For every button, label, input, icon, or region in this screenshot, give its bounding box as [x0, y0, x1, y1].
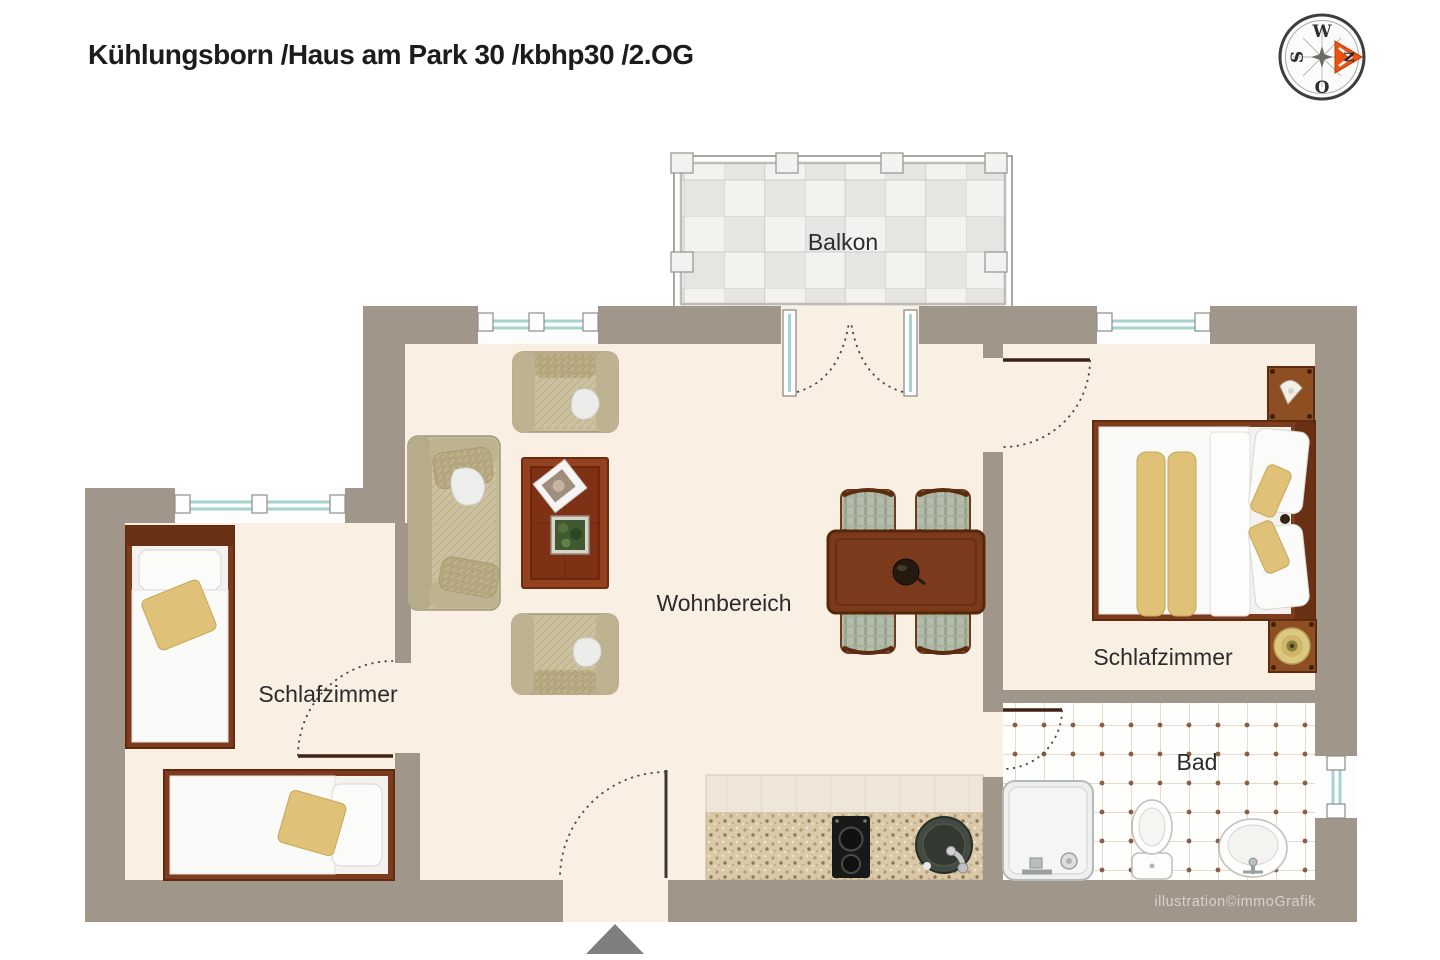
folded-blanket: [1137, 452, 1165, 616]
window-bedroom-right: [1097, 306, 1210, 344]
pillow: [139, 550, 221, 590]
bedroom-right-label: Schlafzimmer: [1093, 644, 1233, 670]
nightstand-top: [1268, 367, 1314, 421]
kitchenette: [706, 775, 983, 880]
compass-north-label: N: [1341, 51, 1356, 63]
sofa: [408, 436, 501, 610]
window-bathroom: [1315, 756, 1357, 818]
armchair-throw: [572, 389, 599, 419]
single-bed-1: [126, 526, 234, 748]
armchair-top: [513, 352, 618, 432]
table-bowl: [893, 559, 919, 585]
window-living: [478, 306, 598, 344]
illustration-credit: illustration©immoGrafik: [1154, 894, 1316, 910]
kitchen-sink: [916, 817, 972, 873]
compass: W S O N: [1280, 15, 1364, 99]
compass-west-label: W: [1311, 22, 1332, 42]
armchair-bottom: [512, 614, 618, 694]
dining-chair: [916, 490, 970, 536]
sofa-throw: [451, 468, 485, 505]
balcony: Balkon: [671, 153, 1012, 310]
shower: [1003, 781, 1093, 880]
entrance-arrow-icon: [586, 924, 644, 954]
floor-plan-page: Kühlungsborn /Haus am Park 30 /kbhp30 /2…: [0, 0, 1440, 960]
window-bedroom-left: [175, 488, 345, 523]
plant: [551, 516, 589, 554]
single-bed-2: [164, 770, 394, 880]
bathroom-label: Bad: [1177, 749, 1218, 775]
folded-blanket: [1168, 452, 1196, 616]
toilet: [1132, 800, 1172, 879]
bedroom-left-label: Schlafzimmer: [258, 681, 398, 707]
balcony-label: Balkon: [808, 229, 878, 255]
compass-south-label: S: [1288, 51, 1308, 63]
living-room-label: Wohnbereich: [656, 590, 791, 616]
floor-plan: Kühlungsborn /Haus am Park 30 /kbhp30 /2…: [0, 0, 1440, 960]
coffee-table: [522, 458, 608, 588]
dining-chair: [841, 490, 895, 536]
nightstand-bottom: [1269, 620, 1316, 672]
bathroom-sink: [1219, 819, 1287, 877]
kitchen-backsplash: [706, 775, 983, 813]
compass-east-label: O: [1315, 78, 1330, 98]
double-bed: [1093, 421, 1315, 620]
armchair-throw: [574, 638, 601, 666]
cooktop: [832, 816, 870, 878]
page-title: Kühlungsborn /Haus am Park 30 /kbhp30 /2…: [88, 39, 694, 70]
dining-table: [828, 531, 984, 613]
